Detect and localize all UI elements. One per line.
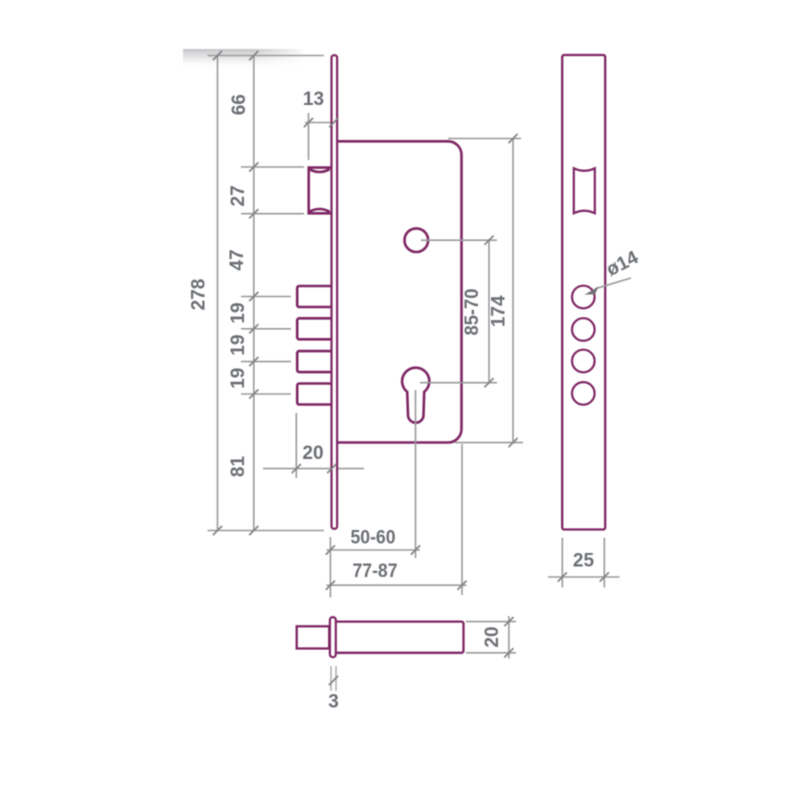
svg-text:25: 25 xyxy=(573,551,595,572)
svg-text:27: 27 xyxy=(228,185,249,206)
svg-text:19: 19 xyxy=(228,302,249,323)
svg-text:66: 66 xyxy=(229,94,250,115)
svg-text:3: 3 xyxy=(328,692,339,713)
svg-text:278: 278 xyxy=(189,279,210,311)
svg-text:13: 13 xyxy=(303,89,324,110)
svg-text:174: 174 xyxy=(489,295,510,327)
svg-text:19: 19 xyxy=(228,368,249,389)
svg-text:20: 20 xyxy=(482,626,503,647)
svg-text:ø14: ø14 xyxy=(603,247,642,281)
svg-text:77-87: 77-87 xyxy=(353,561,398,582)
svg-text:85-70: 85-70 xyxy=(462,288,483,335)
svg-text:20: 20 xyxy=(302,443,323,464)
svg-text:19: 19 xyxy=(228,334,249,355)
svg-text:47: 47 xyxy=(227,249,248,270)
svg-text:50-60: 50-60 xyxy=(351,527,396,548)
svg-text:81: 81 xyxy=(228,456,249,478)
